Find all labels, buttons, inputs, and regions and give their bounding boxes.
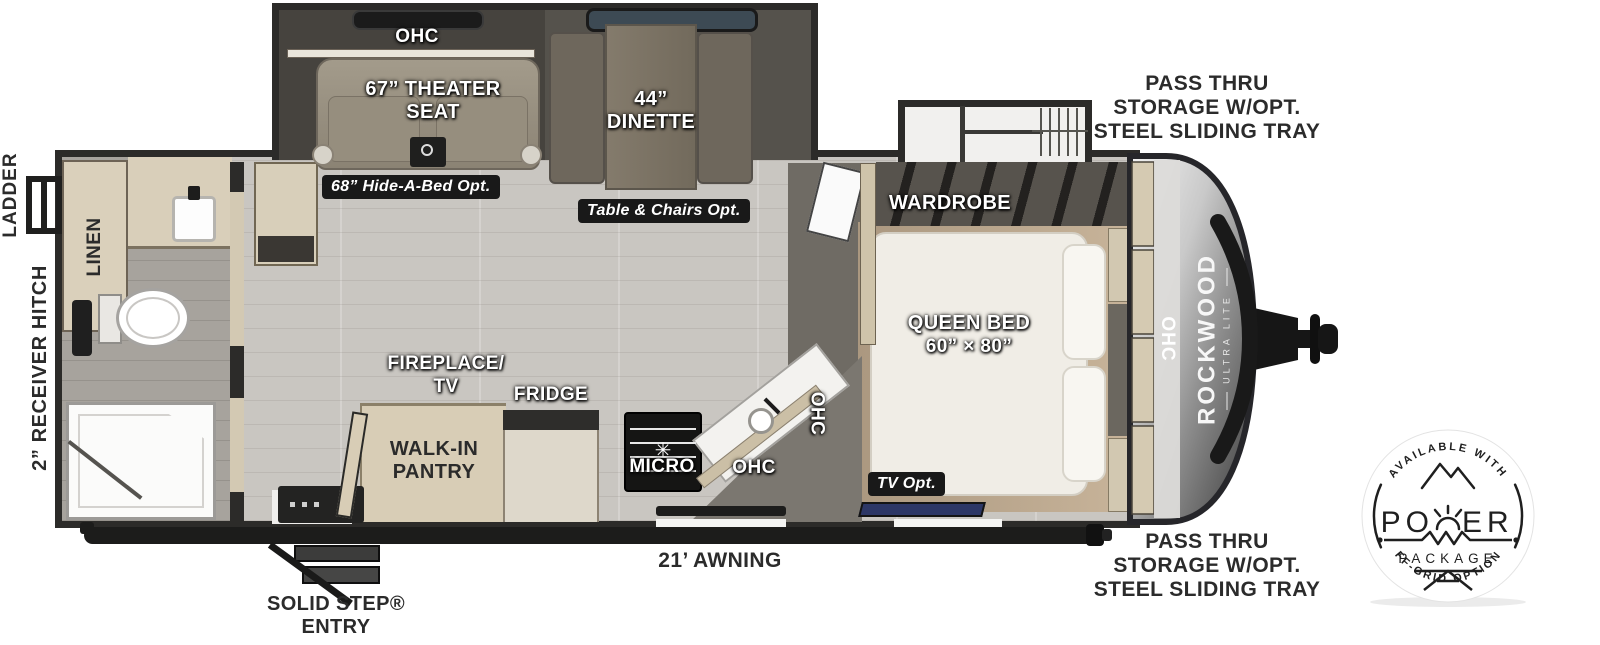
receiver-hitch-label: 2” RECEIVER HITCH (29, 258, 51, 478)
bathroom-sink (172, 196, 216, 242)
wardrobe-shelf-divider (960, 106, 965, 162)
bathroom-wall-cap-mid (230, 346, 244, 398)
pass-thru-label-top: PASS THRU STORAGE W/OPT. STEEL SLIDING T… (1072, 72, 1342, 144)
front-nose: OHC ROCKWOOD ULTRA LITE (1126, 148, 1338, 530)
ohc-cabinet-bar (287, 49, 535, 58)
rear-ladder-rung (41, 176, 47, 234)
fridge-unit-top (503, 410, 599, 430)
bathroom-wall-cap-bottom (230, 492, 244, 522)
ohc-slide-label: OHC (377, 25, 457, 48)
front-ohc-cabinet (1132, 162, 1154, 514)
hide-a-bed-badge: 68” Hide-A-Bed Opt. (322, 175, 500, 199)
exterior-window-bar (656, 506, 786, 516)
floorplan-canvas: LINEN OHC 67” THEATER SEAT 68” Hide-A-Be… (0, 0, 1600, 645)
doorway-strip-bedroom (894, 519, 1002, 527)
solid-step-label: SOLID STEP® ENTRY (246, 593, 426, 639)
brand-wordmark: ROCKWOOD (1193, 253, 1220, 425)
wardrobe-label: WARDROBE (878, 192, 1022, 215)
entry-cabinet-front (258, 236, 314, 262)
solid-step-tread1 (294, 545, 380, 562)
hitch-assembly (1254, 308, 1338, 370)
fridge-label: FRIDGE (504, 383, 598, 406)
power-package-badge: AVAILABLE WITH PO ER PACKAGE OFF-GRID OP… (1360, 426, 1536, 608)
queen-bed-size: 60” × 80” (894, 335, 1044, 358)
bathroom-faucet-icon (188, 186, 200, 200)
ohc-front-label: OHC (1157, 316, 1178, 361)
queen-bed-label: QUEEN BED 60” × 80” (894, 312, 1044, 358)
bathroom-mirror (72, 300, 92, 356)
kitchen-sink (748, 408, 774, 434)
walk-in-pantry-label: WALK-IN PANTRY (364, 438, 504, 484)
micro-label: MICRO (616, 455, 708, 478)
tv-opt-badge: TV Opt. (868, 472, 945, 496)
doorway-strip-kitchen (656, 519, 786, 527)
toilet-bowl-inner (126, 297, 180, 339)
cupholder-icon (421, 144, 433, 156)
linen-label: LINEN (84, 197, 106, 297)
entry-step-dots (290, 502, 324, 507)
bathroom-wall-cap-top (230, 162, 244, 192)
queen-bed-label-line1: QUEEN BED (894, 312, 1044, 335)
ohc-kitchen-vertical-label: OHC (806, 389, 829, 439)
bathroom-wall (230, 162, 244, 522)
brand-series: ULTRA LITE (1221, 294, 1231, 384)
pillow-bottom (1062, 366, 1106, 482)
pillow-top (1062, 244, 1106, 360)
ohc-corner-label: OHC (714, 456, 794, 479)
theater-armrest-right (520, 144, 542, 166)
awning-tube (84, 527, 1094, 544)
queen-bed (870, 232, 1088, 496)
theater-armrest-left (312, 144, 334, 166)
badge-word-start: PO (1381, 506, 1434, 539)
table-chairs-badge: Table & Chairs Opt. (578, 199, 750, 223)
ladder-label: LADDER (0, 145, 22, 245)
bedroom-divider-wall (860, 163, 876, 345)
awning-label: 21’ AWNING (645, 549, 795, 573)
badge-word-end: ER (1462, 506, 1514, 539)
theater-seat-label: 67” THEATER SEAT (348, 78, 518, 124)
pass-thru-label-bottom: PASS THRU STORAGE W/OPT. STEEL SLIDING T… (1072, 530, 1342, 602)
tv-optional (858, 502, 986, 517)
fridge-unit (503, 430, 599, 522)
fireplace-tv-label: FIREPLACE/ TV (381, 352, 511, 398)
dinette-label: 44” DINETTE (591, 88, 711, 134)
